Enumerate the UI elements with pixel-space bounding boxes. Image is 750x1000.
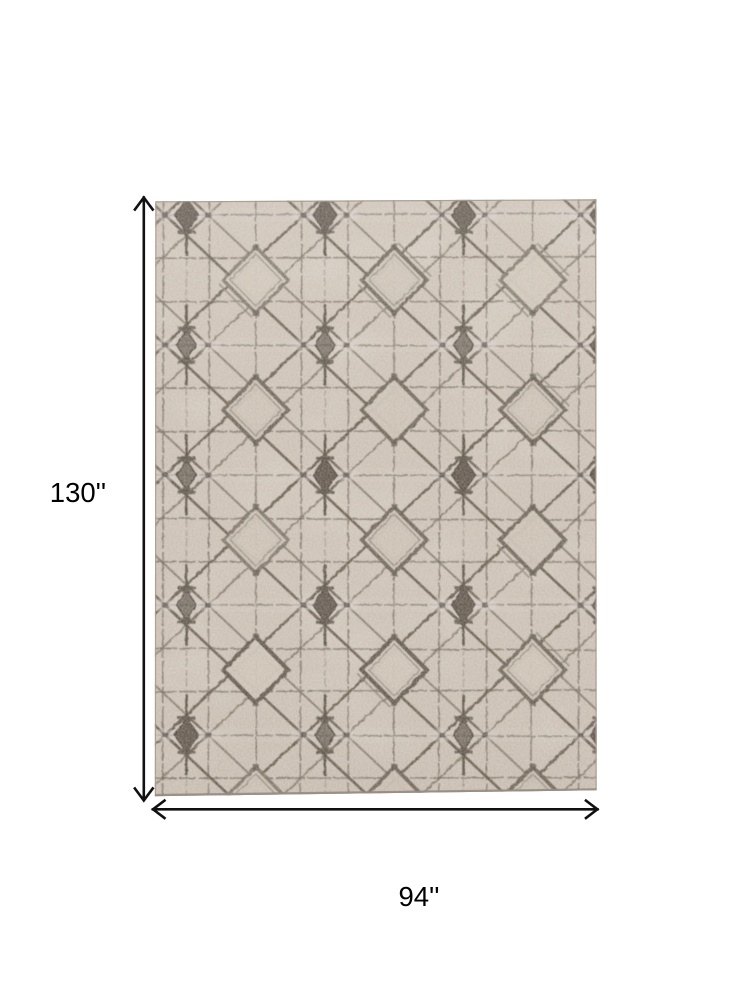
svg-text:94'': 94'': [398, 881, 439, 912]
svg-text:130'': 130'': [50, 477, 106, 508]
